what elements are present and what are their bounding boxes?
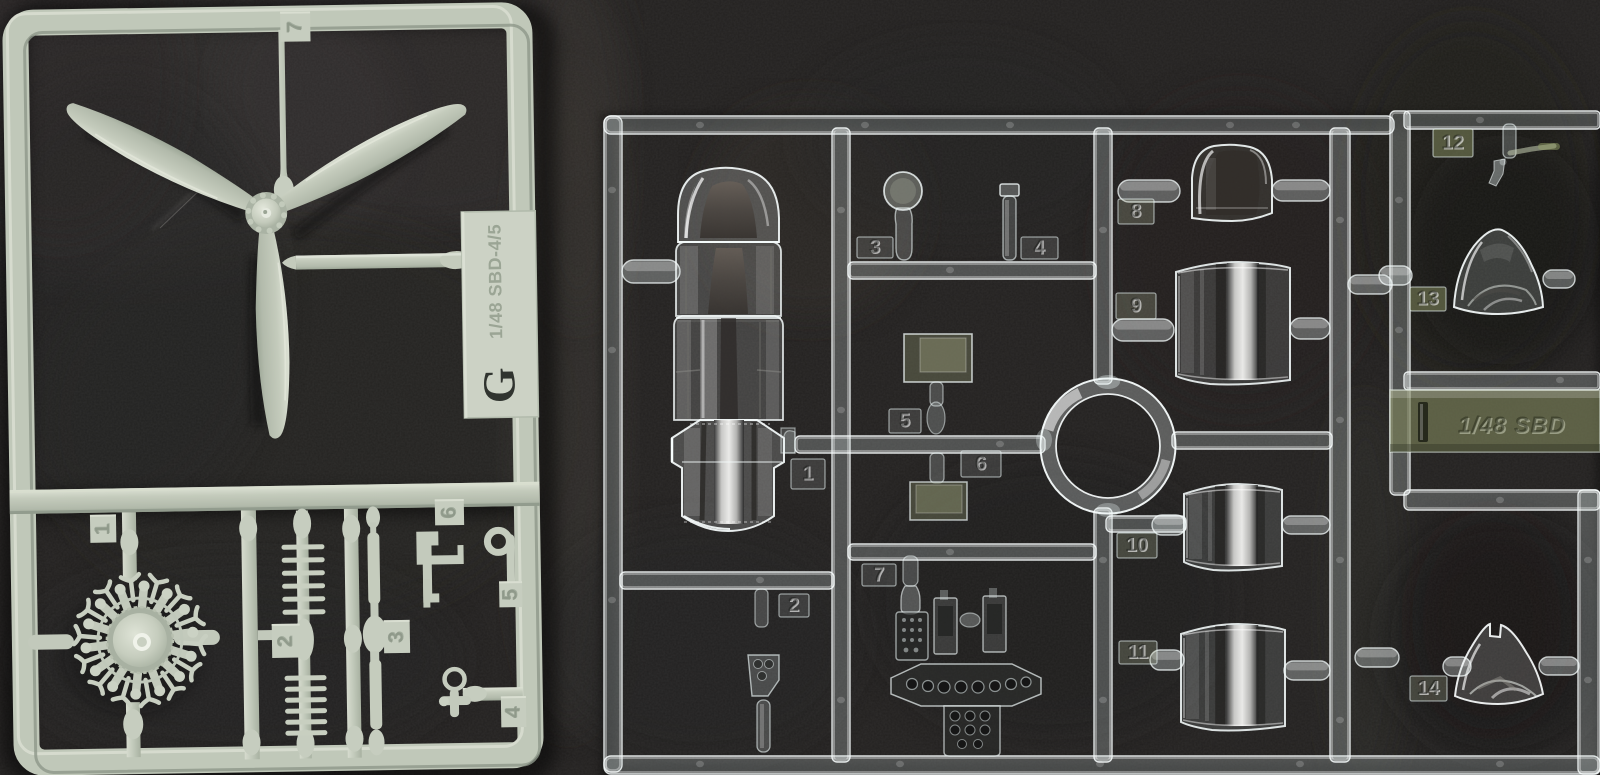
svg-text:13: 13 — [1416, 287, 1438, 309]
svg-text:7: 7 — [873, 563, 884, 585]
svg-text:G: G — [473, 367, 525, 404]
svg-text:2: 2 — [788, 594, 799, 616]
svg-text:8: 8 — [1130, 200, 1141, 222]
svg-text:12: 12 — [1441, 131, 1463, 153]
svg-text:4: 4 — [501, 706, 524, 718]
svg-text:4: 4 — [1033, 236, 1045, 258]
svg-text:3: 3 — [385, 631, 408, 643]
svg-text:11: 11 — [1127, 641, 1148, 663]
svg-text:6: 6 — [437, 507, 460, 519]
svg-text:1: 1 — [91, 523, 114, 535]
svg-text:5: 5 — [498, 589, 521, 601]
svg-text:1/48 SBD-4/5: 1/48 SBD-4/5 — [484, 224, 506, 339]
svg-text:2: 2 — [274, 636, 297, 648]
svg-text:14: 14 — [1417, 677, 1440, 699]
svg-text:10: 10 — [1125, 534, 1147, 556]
svg-text:6: 6 — [975, 452, 986, 474]
svg-text:1/48 SBD: 1/48 SBD — [1458, 412, 1566, 438]
svg-text:3: 3 — [869, 236, 880, 258]
svg-text:5: 5 — [899, 409, 910, 431]
svg-text:1: 1 — [802, 462, 813, 484]
svg-text:7: 7 — [283, 21, 306, 33]
svg-text:9: 9 — [1130, 294, 1141, 316]
